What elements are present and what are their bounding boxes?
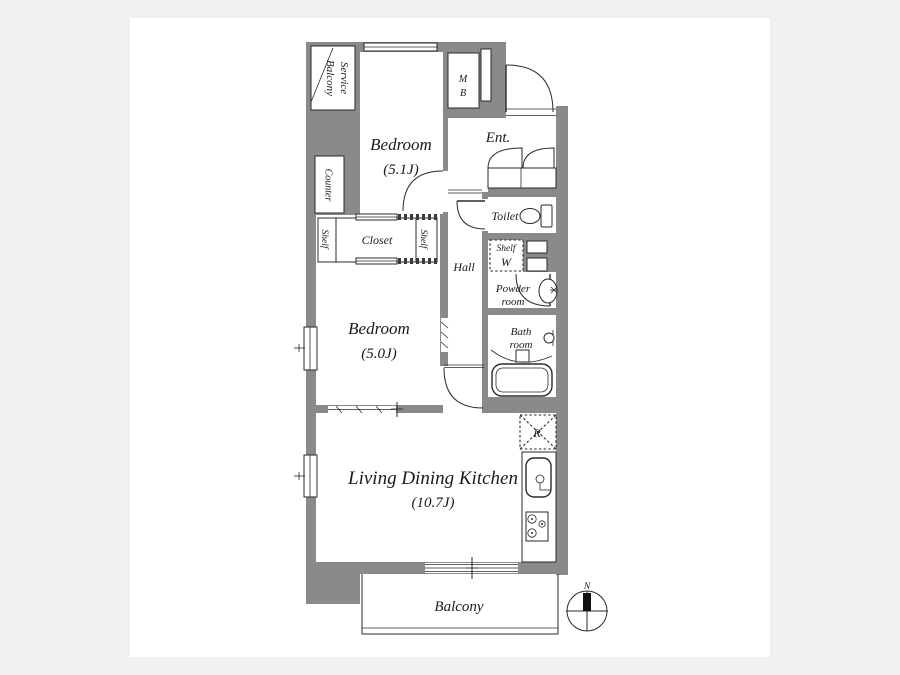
powder-room-label2: room — [502, 296, 525, 308]
meter-box — [448, 49, 491, 108]
ldk-label: Living Dining Kitchen — [347, 468, 518, 489]
counter-label: Counter — [323, 169, 334, 202]
floorplan-page: Service Balcony Bedroom (5.1J) M B Ent. … — [0, 0, 900, 675]
ldk-window — [294, 455, 317, 497]
hall-label: Hall — [452, 260, 475, 274]
bedroom2-size: (5.0J) — [361, 346, 396, 362]
service-balcony-label2: Balcony — [324, 60, 336, 96]
toilet-label: Toilet — [492, 209, 520, 223]
ldk-size: (10.7J) — [412, 495, 455, 511]
bedroom2-window — [294, 327, 317, 370]
floorplan-image: Service Balcony Bedroom (5.1J) M B Ent. … — [0, 0, 900, 675]
bathroom-label2: room — [510, 339, 533, 351]
meter-box-label2: B — [460, 88, 466, 99]
bedroom1-size: (5.1J) — [383, 162, 418, 178]
washer-label: W — [501, 255, 512, 269]
shelf-right-label: Shelf — [418, 230, 429, 250]
entrance-door — [506, 65, 556, 118]
refrigerator-label: R — [532, 426, 541, 440]
compass-north-label: N — [583, 582, 591, 592]
laundry-shelf-box2 — [527, 258, 547, 271]
entrance-label: Ent. — [485, 130, 511, 146]
bathroom-label1: Bath — [511, 326, 532, 338]
bedroom1-floor — [360, 52, 443, 214]
bedroom1-label: Bedroom — [370, 135, 432, 154]
balcony-label: Balcony — [434, 599, 483, 615]
laundry-shelf-box1 — [527, 241, 547, 253]
kitchen-fixtures — [522, 452, 556, 562]
bath-stool — [516, 350, 529, 362]
hall-floor — [448, 118, 482, 368]
stove-icon — [526, 512, 548, 541]
meter-box-label1: M — [458, 74, 468, 85]
compass — [566, 591, 608, 631]
shelf-left-label: Shelf — [319, 230, 330, 250]
service-balcony-label1: Service — [338, 62, 350, 94]
closet-label: Closet — [362, 233, 393, 247]
bedroom1-window — [364, 43, 437, 51]
powder-room-label1: Powder — [495, 283, 531, 295]
north-needle-icon — [583, 593, 591, 611]
bedroom2-label: Bedroom — [348, 319, 410, 338]
bedroom2-sliding-door — [441, 318, 448, 352]
laundry-shelf-label: Shelf — [497, 243, 517, 254]
